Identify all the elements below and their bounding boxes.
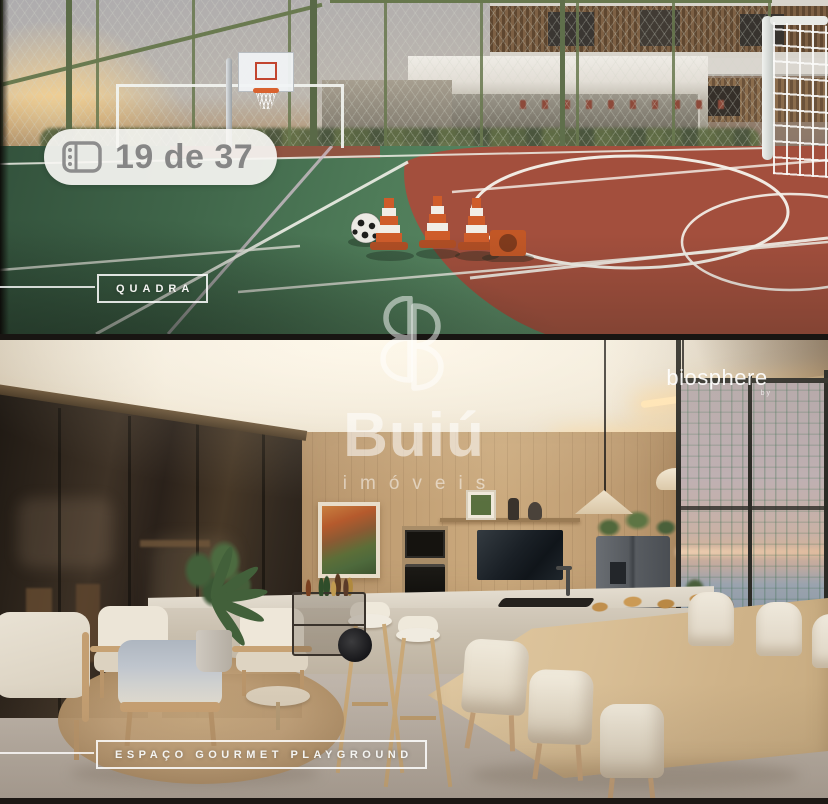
photo-pages-icon [62,141,102,173]
biosphere-name: biosphere [652,366,782,390]
left-edge-shadow [0,0,9,334]
caption-espaco-gourmet: ESPAÇO GOURMET PLAYGROUND [96,740,427,769]
biosphere-tagline: by [652,390,782,397]
caption-line [0,752,94,754]
gallery-viewer: 19 de 37 QUADRA ESPAÇO GOURMET PLAYGROUN… [0,0,828,804]
biosphere-logo: biosphere by [652,366,782,397]
photo-counter-badge[interactable]: 19 de 37 [44,129,277,185]
photo-counter-label: 19 de 37 [115,138,253,177]
photo-espaco-gourmet[interactable] [0,340,828,798]
photo-vignette [0,340,828,798]
bottom-edge [0,798,828,804]
caption-quadra: QUADRA [97,274,208,303]
caption-line [0,286,95,288]
